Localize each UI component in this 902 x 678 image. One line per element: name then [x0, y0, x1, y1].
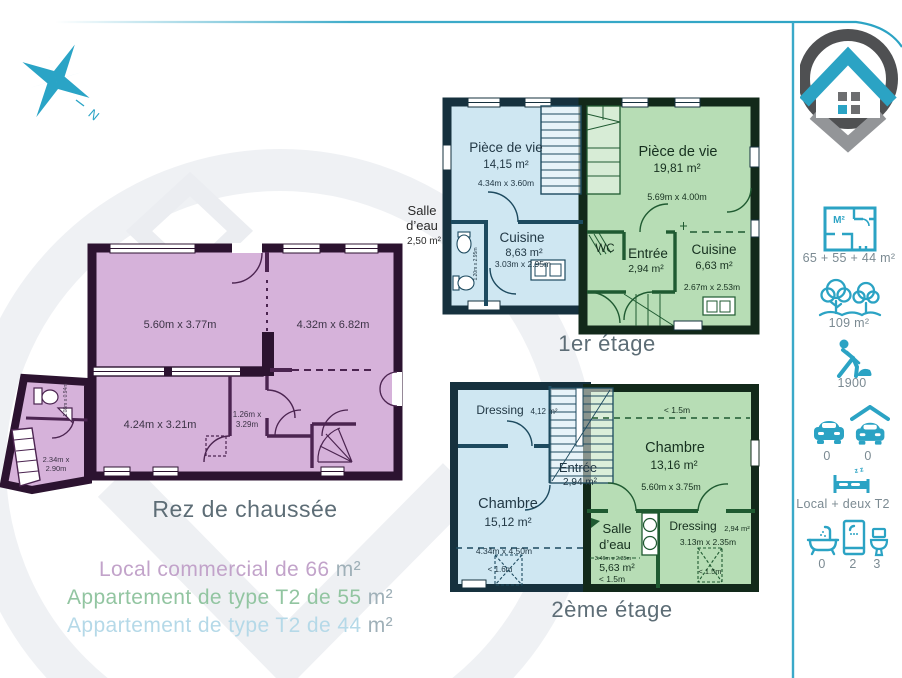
unit-layout-value: Local + deux T2: [788, 497, 898, 511]
room-name-label: Cuisine: [691, 242, 736, 257]
room-name-label: Chambre: [478, 496, 538, 512]
outside-room-area: 2,50 m²: [407, 236, 442, 247]
room-dims-label: 1.20m x 2.95m: [473, 247, 479, 280]
room-dims-label: 1.26m x: [233, 410, 261, 419]
room-name-label: Entrée: [559, 460, 597, 475]
room-name-label: WC: [595, 243, 614, 255]
room-area-label: 13,16 m²: [650, 458, 697, 472]
room-name-label: Chambre: [645, 440, 705, 456]
sink-fixture: [457, 235, 471, 253]
room-dims-label: 4.24m x 3.21m: [124, 419, 197, 431]
ground-floor-label: Rez de chaussée: [95, 496, 395, 523]
construction-year-icon: [828, 338, 874, 378]
room-dims-label: 3.29m: [236, 420, 259, 429]
room-area-label: 2,94 m²: [724, 524, 750, 533]
room-name-label: Salle: [603, 521, 632, 536]
room-dims-label: 4.34m x 3.60m: [478, 178, 534, 188]
room-dims-label: 2.34m x: [43, 455, 70, 464]
room-area-label: 4,12 m²: [530, 407, 557, 416]
toilet-icon: [868, 527, 890, 558]
second-floor-label: 2ème étage: [512, 597, 712, 623]
room-name-label: Dressing: [476, 403, 523, 417]
room-name-label: Cuisine: [499, 230, 544, 245]
ceiling-height-label: < 1.5m: [664, 405, 690, 415]
land-area-value: 109 m²: [794, 316, 902, 330]
first-floor-plan: Salle d’eau 2,50 m² Pièce de vie 14,15 m…: [398, 92, 764, 342]
outside-room-name: Salle: [408, 203, 437, 218]
room-name-label: Pièce de vie: [469, 140, 543, 155]
room-area-label: 8,63 m²: [505, 247, 543, 259]
room-name-label: d’eau: [599, 537, 631, 552]
room-area-label: 2,94 m²: [563, 477, 598, 488]
room-dims-label: 4.32m x 6.82m: [297, 319, 370, 331]
legend-line-t2-55: Appartement de type T2 de 55 m²: [20, 584, 440, 612]
room-dims-label: 5.60m x 3.75m: [641, 482, 701, 492]
first-floor-label: 1er étage: [507, 331, 707, 357]
ground-floor-annex: [4, 378, 88, 490]
bathtub-icon: [806, 524, 840, 556]
parking-count: 0: [807, 449, 847, 463]
shower-icon: [842, 519, 866, 557]
laundry-fixture: [642, 513, 658, 555]
room-dims-label: 3.03m x 2.95m: [495, 259, 551, 269]
ceiling-height-label: < 1.6m: [488, 565, 513, 574]
ceiling-height-label: < 1.5m: [698, 567, 721, 576]
legend-unit: m²: [368, 614, 393, 637]
legend-unit: m²: [368, 586, 393, 609]
legend-text: Local commercial de 66: [99, 558, 330, 581]
second-floor-plan: Dressing 4,12 m² Entrée 2,94 m² Chambre …: [440, 378, 780, 618]
toilet-count: 3: [857, 557, 897, 571]
toilet-fixture: [458, 276, 474, 290]
ground-floor-plan: 5.60m x 3.77m 4.32m x 6.82m 4.24m x 3.21…: [0, 240, 410, 520]
trees-icon: [818, 277, 882, 317]
compass-north-label: N: [86, 106, 103, 124]
garage-count: 0: [848, 449, 888, 463]
room-area-label: 14,15 m²: [483, 159, 529, 171]
ceiling-height-label: < 1.5m: [599, 574, 625, 584]
bed-icon: z z: [831, 463, 871, 497]
outside-room-name: d’eau: [406, 218, 438, 233]
car-icon: [812, 417, 846, 447]
room-area-label: 19,81 m²: [653, 161, 700, 175]
room-area-label: 5,63 m²: [599, 562, 635, 574]
room-dims-label: 5.69m x 4.00m: [647, 192, 707, 202]
agency-logo: [800, 26, 900, 158]
room-name-label: Dressing: [669, 519, 716, 533]
floorplan-sheet: N: [0, 0, 902, 678]
green-winder-stairs: [587, 106, 620, 194]
room-area-label: 6,63 m²: [695, 260, 733, 272]
toilet-fixture: [34, 388, 42, 404]
room-area-label: 2,94 m²: [628, 263, 664, 275]
room-name-label: Entrée: [628, 246, 668, 261]
compass-icon: N: [14, 42, 114, 130]
sleep-marks-label: z z: [854, 466, 865, 475]
plan-icon-m2-label: M²: [833, 215, 845, 226]
room-dims-label: 4.34m x 4.50m: [476, 546, 532, 556]
legend-text: Appartement de type T2 de 44: [67, 614, 362, 637]
blue-stairs: [541, 106, 581, 194]
room-dims-label: 5.60m x 3.77m: [144, 319, 217, 331]
room-area-label: 15,12 m²: [484, 515, 531, 529]
room-dims-label: 3.13m x 2.35m: [680, 537, 736, 547]
ground-floor-walls: [92, 248, 398, 476]
construction-year-value: 1900: [797, 376, 902, 390]
legend-unit: m²: [336, 558, 361, 581]
room-dims-label: 1.08m x 0.94m: [63, 383, 69, 416]
total-area-value: 65 + 55 + 44 m²: [794, 251, 902, 265]
legend-line-commercial: Local commercial de 66 m²: [20, 556, 440, 584]
room-name-label: Pièce de vie: [639, 144, 718, 160]
legend-text: Appartement de type T2 de 55: [67, 586, 362, 609]
legend-line-t2-44: Appartement de type T2 de 44 m²: [20, 612, 440, 640]
legend: Local commercial de 66 m² Appartement de…: [20, 556, 440, 640]
floorplan-icon: M²: [822, 205, 878, 253]
room-dims-label: 2.90m: [46, 464, 67, 473]
room-dims-label: 2.67m x 2.53m: [684, 282, 740, 292]
garage-icon: [850, 405, 890, 449]
